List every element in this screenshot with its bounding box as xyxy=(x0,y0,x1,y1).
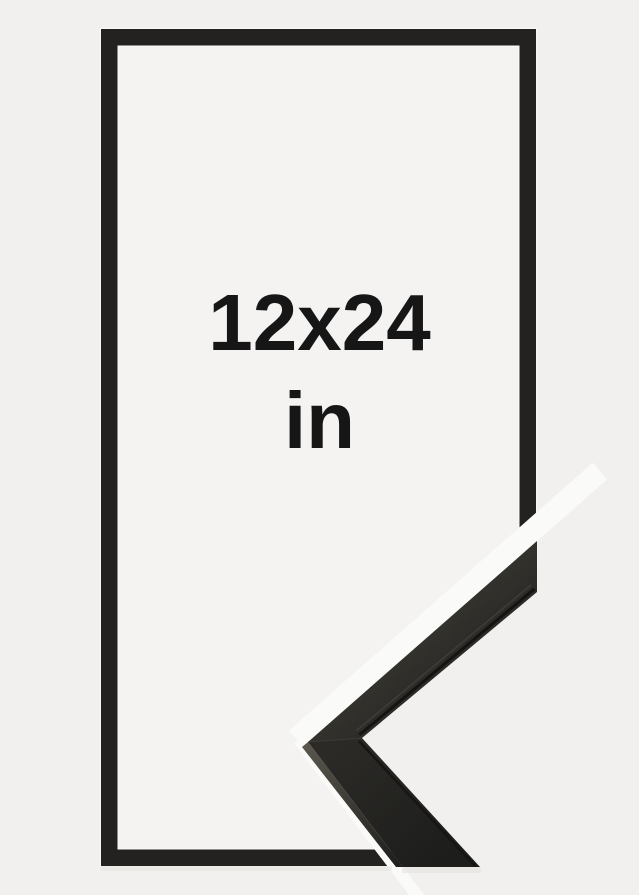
frame-size-product-image: 12x24 in xyxy=(0,0,639,895)
frame-size-illustration: 12x24 in xyxy=(0,0,639,895)
corner-bottom-shadow xyxy=(402,867,481,873)
outline-bottom-shadow xyxy=(101,866,392,871)
size-unit-text: in xyxy=(284,376,355,465)
size-value-text: 12x24 xyxy=(208,278,431,367)
